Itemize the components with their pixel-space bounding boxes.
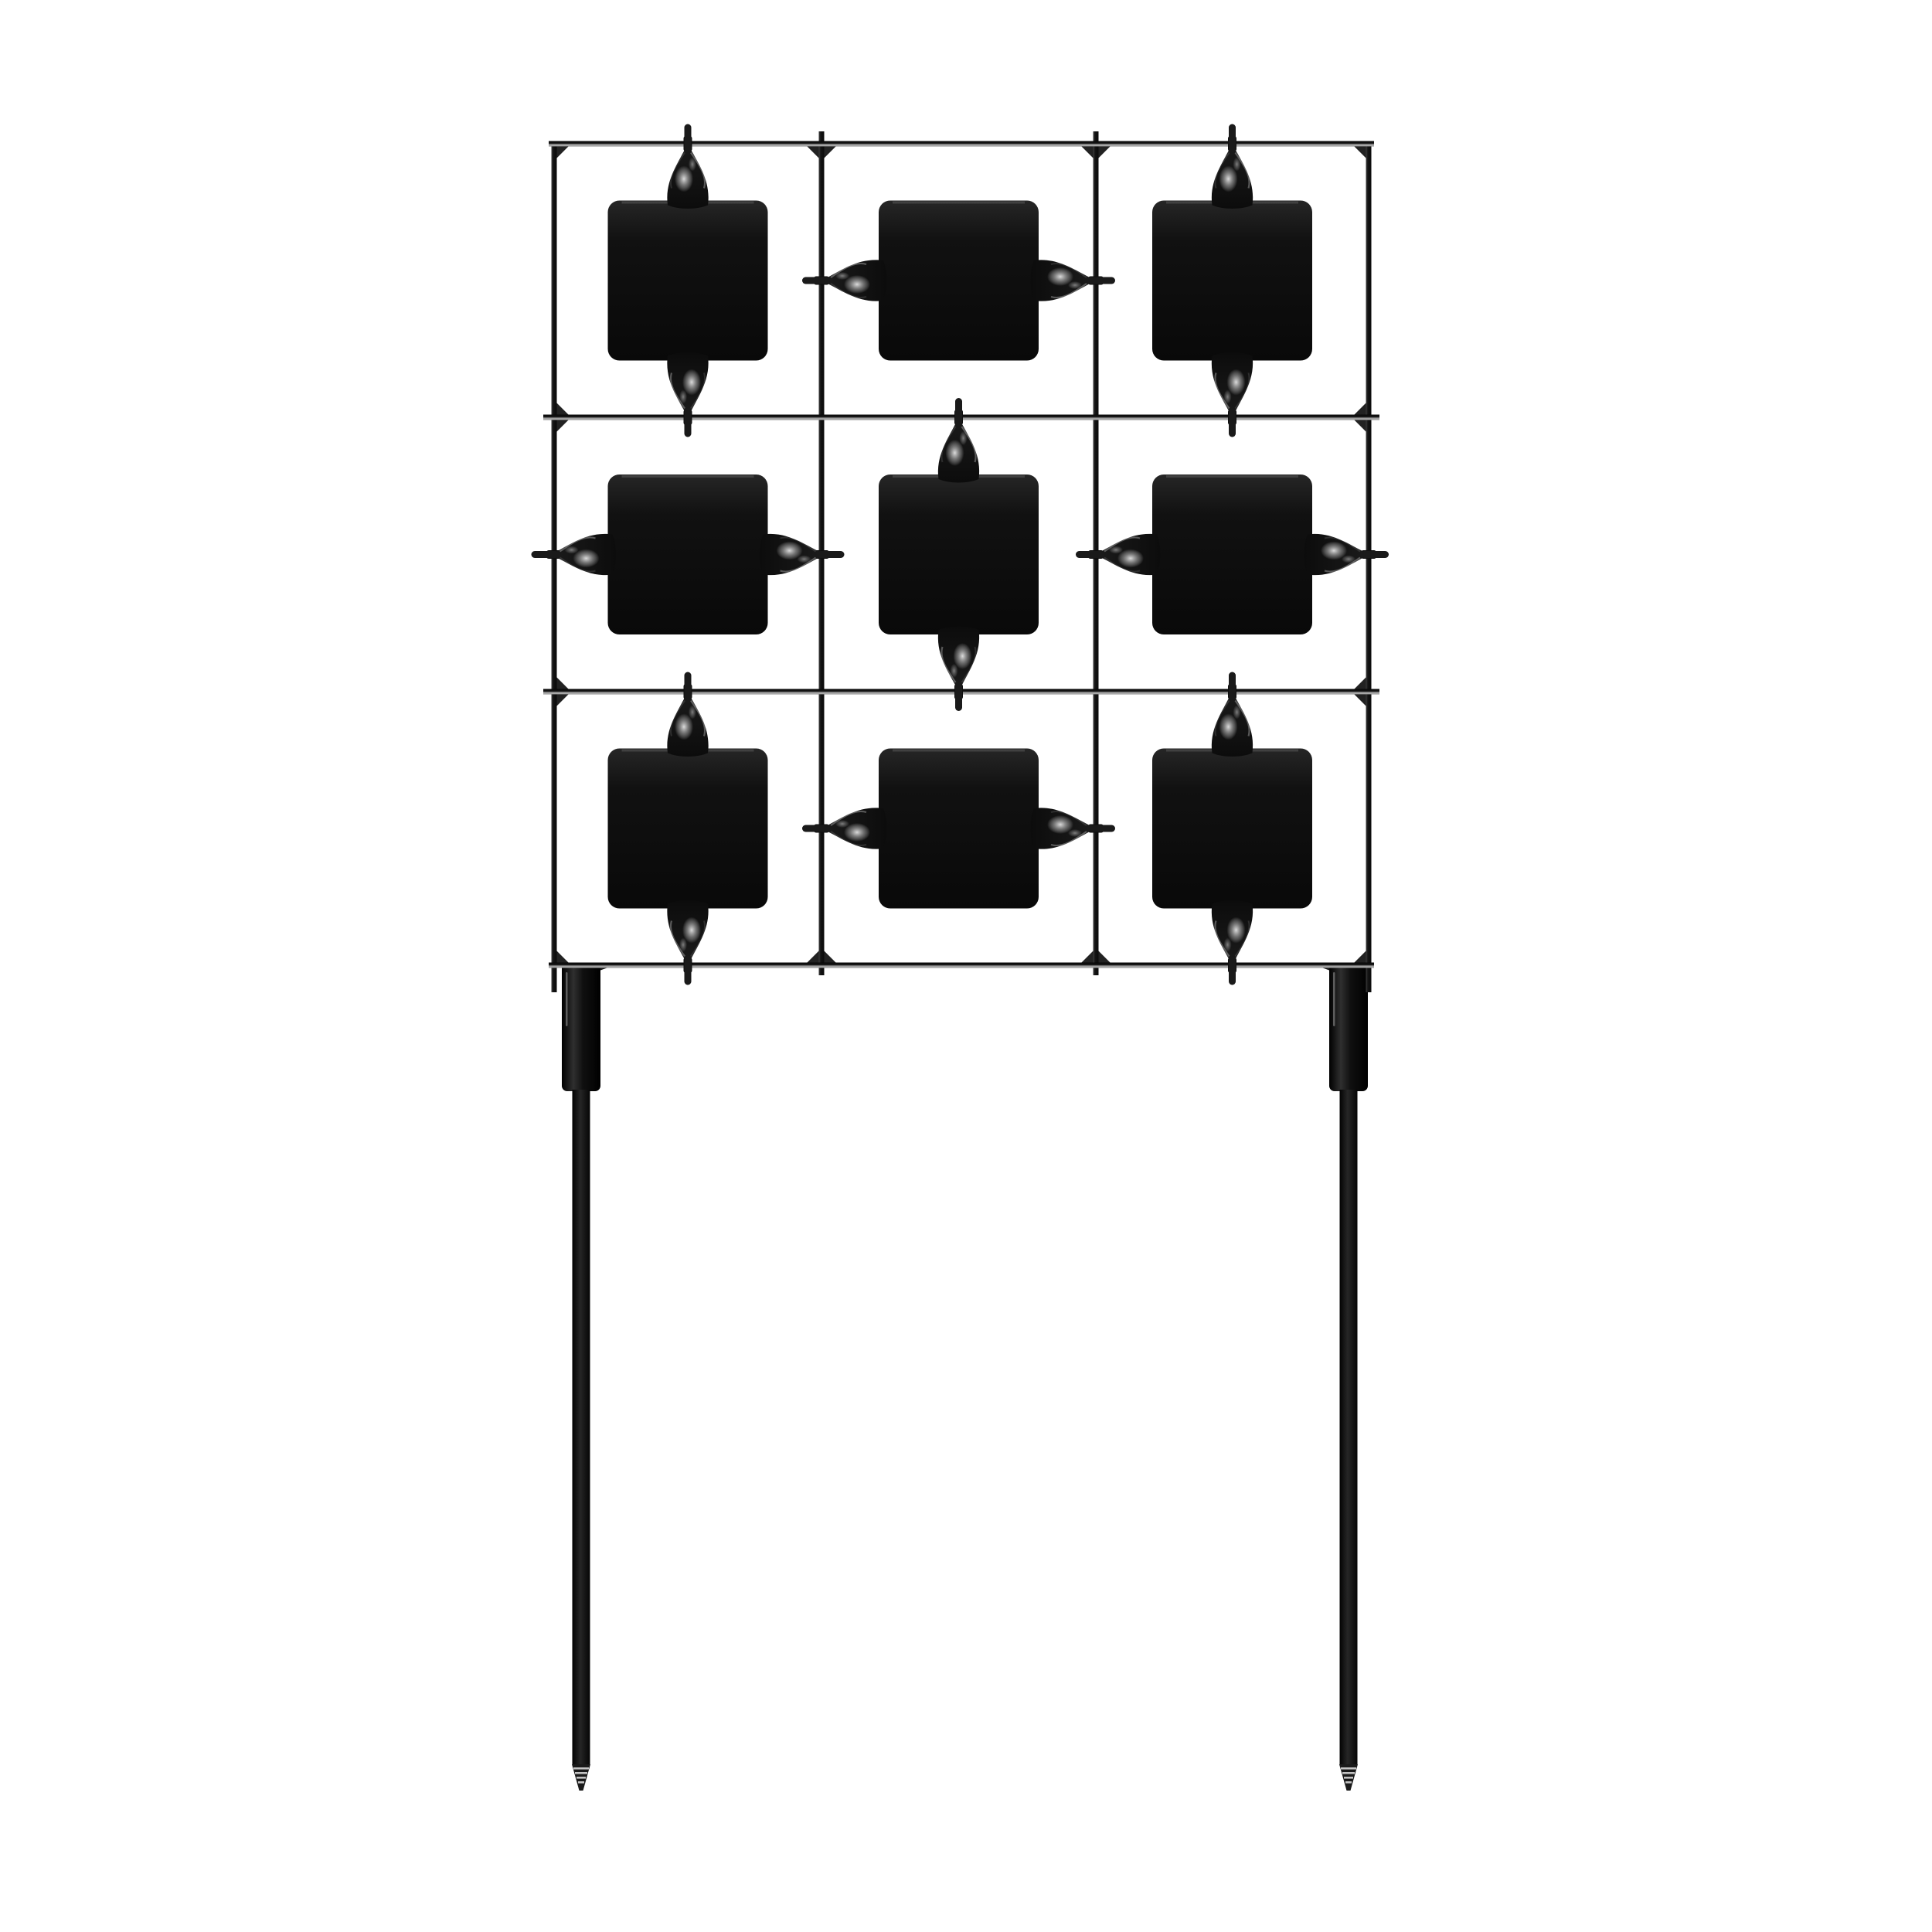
- product-photo-canvas: [0, 0, 1932, 1932]
- axle-tip: [532, 551, 560, 558]
- stake-tip-rib: [577, 1777, 586, 1779]
- target-plate: [1152, 474, 1312, 634]
- stake-tip-rib: [1345, 1781, 1352, 1784]
- blade-specular-highlight-small: [1224, 938, 1232, 952]
- blade-specular-highlight-small: [1109, 546, 1123, 554]
- blade-specular-highlight-small: [960, 431, 968, 445]
- stake-tip-rib: [573, 1767, 589, 1770]
- target-rack-svg: [0, 0, 1932, 1932]
- blade-specular-highlight-small: [951, 664, 958, 678]
- axle-tip: [685, 957, 692, 985]
- frame-wire-right: [1366, 141, 1372, 993]
- blade-specular-highlight-small: [1233, 706, 1241, 719]
- axle-tip: [1229, 672, 1236, 700]
- stake-tube-glint: [1333, 972, 1335, 1026]
- blade-specular-highlight-small: [1068, 281, 1082, 289]
- blade-specular-highlight-small: [1224, 390, 1232, 404]
- stake-tip-rib: [1344, 1777, 1353, 1779]
- blade-specular-highlight-small: [798, 556, 811, 563]
- frame-wire-top: [549, 141, 1374, 147]
- target-plate: [879, 749, 1039, 909]
- blade-specular-highlight-small: [689, 158, 696, 172]
- stake-rod: [1340, 1090, 1358, 1764]
- blade-specular-highlight-small: [1068, 829, 1082, 837]
- blade-specular-highlight-small: [1233, 158, 1241, 172]
- stake-tube-glint: [566, 972, 568, 1026]
- axle-tip: [685, 124, 692, 152]
- axle-tip: [1229, 124, 1236, 152]
- blade-specular-highlight-small: [835, 272, 849, 280]
- axle-tip: [955, 398, 962, 426]
- target-plate: [879, 474, 1039, 634]
- stake-rod: [573, 1090, 590, 1764]
- blade-specular-highlight-small: [679, 938, 687, 952]
- axle-tip: [1361, 551, 1389, 558]
- blade-specular-highlight-small: [835, 820, 849, 828]
- target-plate: [1152, 201, 1312, 361]
- frame-wire-left: [552, 141, 557, 993]
- axle-tip: [802, 825, 830, 832]
- axle-tip: [955, 683, 962, 711]
- blade-specular-highlight-small: [689, 706, 696, 719]
- blade-specular-highlight-small: [1342, 556, 1355, 563]
- target-plate: [608, 749, 768, 909]
- stake-tip-rib: [1342, 1772, 1355, 1774]
- axle-tip: [802, 277, 830, 284]
- target-plate: [608, 201, 768, 361]
- blade-specular-highlight-small: [565, 546, 579, 554]
- axle-tip: [1076, 551, 1104, 558]
- blade-specular-highlight-small: [679, 390, 687, 404]
- target-plate: [879, 201, 1039, 361]
- stake-tip-rib: [578, 1781, 584, 1784]
- axle-tip: [1229, 957, 1236, 985]
- axle-tip: [1087, 277, 1115, 284]
- stake-tip-rib: [1341, 1767, 1356, 1770]
- frame-wire-bottom: [549, 963, 1374, 968]
- axle-tip: [817, 551, 845, 558]
- stake-tip-rib: [575, 1772, 587, 1774]
- axle-tip: [685, 410, 692, 437]
- axle-tip: [1229, 410, 1236, 437]
- axle-tip: [1087, 825, 1115, 832]
- axle-tip: [685, 672, 692, 700]
- target-plate: [1152, 749, 1312, 909]
- product-photo: [0, 0, 1932, 1932]
- target-plate: [608, 474, 768, 634]
